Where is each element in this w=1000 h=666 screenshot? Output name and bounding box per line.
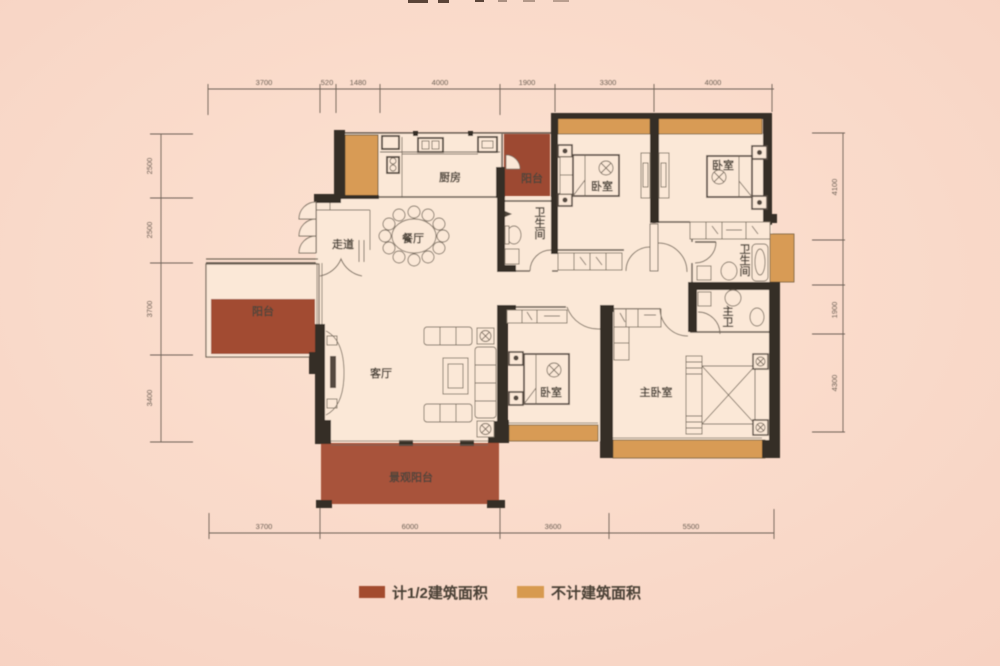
svg-text:计1/2建筑面积: 计1/2建筑面积 [392,584,488,602]
svg-text:阳台: 阳台 [521,171,543,185]
svg-text:3700: 3700 [256,522,273,531]
svg-text:阳台: 阳台 [252,304,274,318]
svg-text:4300: 4300 [830,375,839,392]
svg-text:卫生间: 卫生间 [535,206,546,241]
svg-text:3600: 3600 [545,522,562,531]
svg-text:3300: 3300 [600,78,617,87]
svg-text:3700: 3700 [256,78,273,87]
svg-text:4100: 4100 [830,179,839,196]
svg-text:卧室: 卧室 [540,385,562,399]
svg-text:3400: 3400 [145,390,154,407]
svg-text:卫生间: 卫生间 [740,243,751,278]
svg-text:1480: 1480 [350,78,367,87]
svg-text:2500: 2500 [145,222,154,239]
svg-text:4000: 4000 [432,78,449,87]
svg-text:4000: 4000 [705,78,722,87]
svg-text:餐厅: 餐厅 [401,231,424,245]
svg-text:2500: 2500 [145,158,154,175]
svg-text:客厅: 客厅 [369,366,392,380]
svg-text:卧室: 卧室 [591,179,613,193]
svg-text:主卧室: 主卧室 [640,385,673,399]
svg-text:卧室: 卧室 [712,158,734,172]
svg-text:不计建筑面积: 不计建筑面积 [551,584,641,602]
svg-text:6000: 6000 [402,522,419,531]
svg-text:走道: 走道 [331,237,354,251]
svg-text:1900: 1900 [519,78,536,87]
svg-text:景观阳台: 景观阳台 [388,470,433,484]
svg-text:1900: 1900 [830,302,839,319]
svg-text:3700: 3700 [145,301,154,318]
svg-text:5500: 5500 [683,522,700,531]
svg-text:厨房: 厨房 [439,170,461,184]
svg-text:主卫: 主卫 [723,304,734,329]
svg-text:520: 520 [321,78,334,87]
